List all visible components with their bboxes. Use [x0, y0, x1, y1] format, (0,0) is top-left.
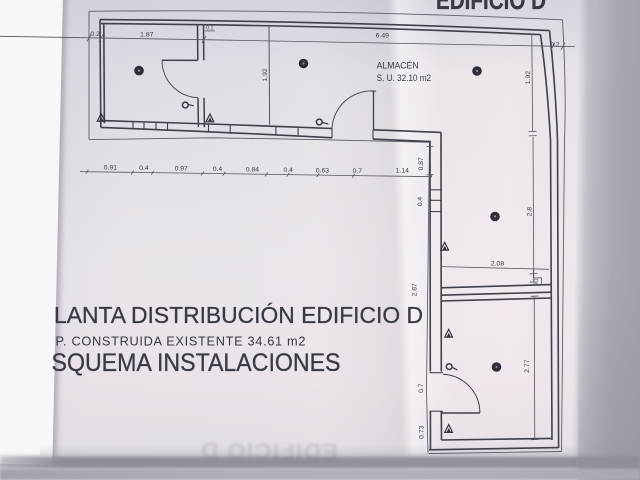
svg-text:2.8: 2.8	[527, 207, 534, 217]
svg-text:P. CONSTRUIDA EXISTENTE 34.61: P. CONSTRUIDA EXISTENTE 34.61 m2	[56, 333, 306, 348]
svg-text:1.14: 1.14	[396, 167, 409, 174]
svg-text:0.4: 0.4	[283, 167, 293, 174]
svg-text:0.1: 0.1	[534, 278, 540, 285]
svg-text:ALMACÉN: ALMACÉN	[377, 60, 419, 71]
svg-text:0.4: 0.4	[417, 197, 424, 207]
svg-text:LANTA DISTRIBUCIÓN EDIFICIO D: LANTA DISTRIBUCIÓN EDIFICIO D	[54, 302, 423, 328]
svg-text:2.08: 2.08	[491, 260, 504, 267]
svg-text:0.1: 0.1	[206, 25, 213, 31]
svg-text:1.92: 1.92	[525, 71, 532, 84]
svg-text:2.77: 2.77	[524, 359, 531, 372]
svg-text:0.73: 0.73	[418, 425, 425, 438]
svg-text:0.97: 0.97	[175, 165, 188, 172]
svg-text:0.84: 0.84	[246, 167, 259, 174]
svg-text:SQUEMA INSTALACIONES: SQUEMA INSTALACIONES	[52, 349, 341, 377]
svg-text:0.63: 0.63	[316, 168, 329, 175]
svg-text:EDIFICIO D: EDIFICIO D	[436, 0, 546, 15]
svg-text:0.91: 0.91	[104, 164, 117, 171]
svg-text:0.2: 0.2	[90, 31, 100, 38]
svg-text:S. U. 32.10 m2: S. U. 32.10 m2	[377, 73, 432, 83]
svg-text:0.2: 0.2	[550, 41, 560, 48]
svg-text:0.87: 0.87	[418, 157, 425, 170]
svg-text:0.7: 0.7	[353, 168, 363, 175]
svg-text:2.87: 2.87	[411, 283, 418, 296]
svg-text:1.87: 1.87	[140, 32, 153, 39]
svg-text:0.4: 0.4	[213, 166, 223, 173]
svg-text:6.49: 6.49	[376, 32, 389, 39]
svg-text:0.7: 0.7	[418, 383, 425, 393]
svg-text:1.92: 1.92	[262, 68, 269, 81]
svg-text:0.4: 0.4	[139, 165, 149, 172]
